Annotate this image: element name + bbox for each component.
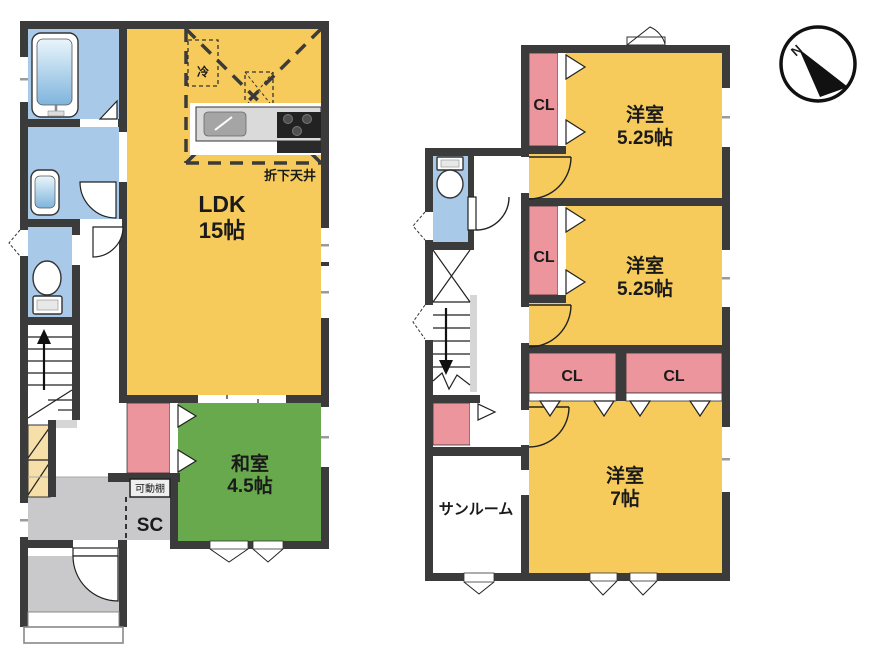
ldk-size-label: 15帖 [199, 218, 245, 243]
bedroom3-right-window [722, 427, 730, 492]
washitsu-bottom-windows [210, 541, 283, 562]
closet4-label: CL [663, 368, 685, 385]
ldk-washroom-sliding-door [119, 132, 127, 182]
bedroom2-right-window [722, 250, 730, 307]
ldk-right-windows [321, 228, 329, 318]
shoe-closet-label: SC [137, 515, 164, 536]
hall-door-swing [93, 227, 123, 257]
toilet1-window [9, 230, 28, 256]
washbasin [31, 170, 59, 215]
bathroom-window [20, 57, 28, 102]
sunroom-opening [521, 470, 529, 495]
bedroom3-floor [529, 401, 722, 573]
toilet1-door [72, 235, 80, 265]
floor1-plan: LDK 15帖 冷 折下天井 和室 4.5帖 可動棚 SC [9, 21, 329, 643]
bedroom1-size-label: 5.25帖 [617, 126, 673, 149]
sunroom-bottom-window [464, 573, 494, 594]
bedroom2-size-label: 5.25帖 [617, 277, 673, 300]
toilet2-door [468, 197, 509, 230]
closet2-label: CL [533, 249, 555, 266]
movable-shelf: 可動棚 [130, 479, 170, 497]
bathtub [32, 33, 78, 117]
entrance-window [20, 503, 28, 537]
floor-plan-drawing: LDK 15帖 冷 折下天井 和室 4.5帖 可動棚 SC [0, 0, 882, 655]
toilet1-fixture [33, 261, 62, 314]
washitsu-right-window [321, 407, 329, 467]
closet1-label: CL [533, 97, 555, 114]
kitchen-sink [204, 112, 246, 136]
closet3-label: CL [561, 368, 583, 385]
stair-rail [470, 295, 477, 392]
bedroom1-top-window [627, 27, 665, 45]
bedroom1-label: 洋室 [626, 103, 664, 126]
floor-plan-page: LDK 15帖 冷 折下天井 和室 4.5帖 可動棚 SC [0, 0, 882, 655]
stairs2-window [413, 305, 433, 340]
understair-storage [28, 425, 50, 497]
stair-break-line [433, 373, 470, 389]
washitsu-closet [127, 403, 170, 473]
bedroom2-label: 洋室 [626, 254, 664, 277]
compass: N [781, 27, 855, 101]
porch-steps [24, 612, 123, 643]
floor2-stairs [433, 250, 470, 389]
floor1-stairs [28, 329, 72, 418]
washitsu-label: 和室 [231, 452, 269, 475]
stove-front [277, 141, 321, 153]
ldk-label: LDK [198, 191, 246, 217]
bedroom1-right-window [722, 88, 730, 147]
washitsu-sliding-door [198, 395, 286, 403]
refrigerator-label: 冷 [197, 64, 209, 79]
movable-shelf-label: 可動棚 [135, 482, 165, 495]
toilet2-window [413, 212, 433, 240]
dropped-ceiling-label: 折下天井 [264, 168, 316, 183]
hall-storage-door [470, 403, 495, 445]
floor2-plan: CL 洋室 5.25帖 CL 洋室 5.25帖 CL CL 洋室 7帖 サンルー… [413, 27, 730, 595]
washitsu-size-label: 4.5帖 [227, 474, 272, 497]
bedroom3-size-label: 7帖 [610, 487, 640, 510]
sunroom-label: サンルーム [439, 501, 514, 518]
stove [277, 112, 321, 138]
toilet2-fixture [437, 157, 463, 198]
hall-storage [433, 403, 470, 445]
bedroom3-label: 洋室 [606, 464, 644, 487]
